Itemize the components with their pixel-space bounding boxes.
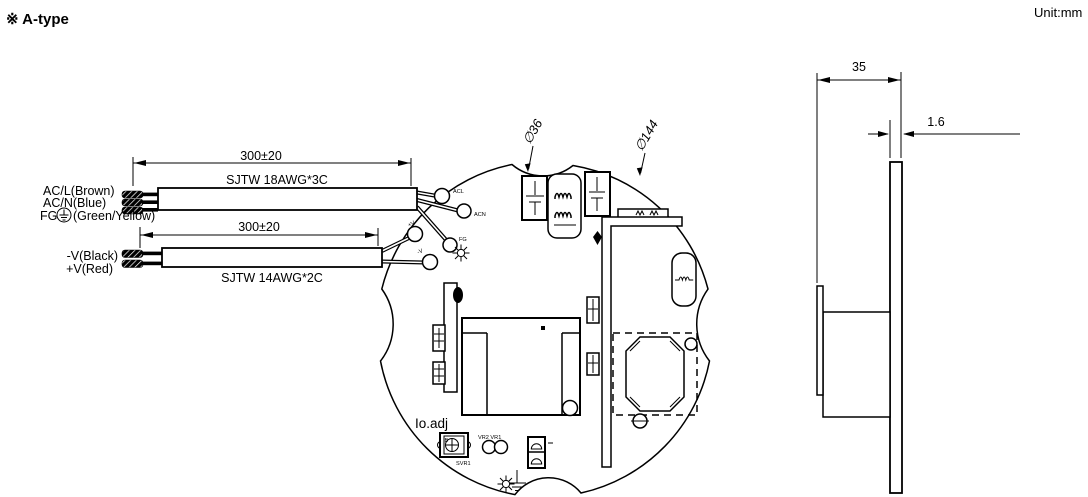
wire-strand-stub bbox=[122, 199, 143, 206]
input-cable-jacket bbox=[158, 188, 417, 210]
wire-label-fg-suffix: (Green/Yellow) bbox=[73, 209, 155, 223]
terminal-label-acn: ACN bbox=[474, 212, 486, 218]
side-component-flange bbox=[817, 286, 823, 395]
output-cable-length: 300±20 bbox=[238, 220, 280, 234]
terminal-neg bbox=[423, 255, 438, 270]
terminal-acl bbox=[435, 189, 450, 204]
chassis-ground-icon bbox=[453, 245, 470, 262]
wire-strand-stub bbox=[122, 191, 143, 198]
thickness-dimension: 1.6 bbox=[927, 115, 944, 129]
output-cable-spec: SJTW 14AWG*2C bbox=[221, 271, 323, 285]
terminal-fg bbox=[443, 238, 457, 252]
wire-lead bbox=[142, 252, 162, 256]
wire-strand-stub bbox=[122, 250, 143, 258]
side-plate bbox=[890, 162, 902, 493]
transformer bbox=[462, 318, 580, 416]
output-cable-jacket bbox=[162, 248, 382, 267]
mechanical-drawing-page: ※ A-type Unit:mm ∅36 ∅144 300±20 SJTW 18… bbox=[0, 0, 1088, 497]
choke-coil-box bbox=[548, 174, 581, 238]
wire-label-neg: -V(Black) bbox=[67, 249, 118, 263]
wire-label-fg-prefix: FG bbox=[40, 209, 57, 223]
wire-strand-stub bbox=[122, 260, 143, 268]
drawing-canvas: ※ A-type Unit:mm ∅36 ∅144 300±20 SJTW 18… bbox=[0, 0, 1088, 497]
type-label: ※ A-type bbox=[6, 11, 69, 28]
input-cable-spec: SJTW 18AWG*3C bbox=[226, 173, 328, 187]
depth-dimension: 35 bbox=[852, 60, 866, 74]
input-cable-length: 300±20 bbox=[240, 149, 282, 163]
io-adj-label: Io.adj bbox=[415, 416, 448, 431]
wire-lead bbox=[142, 200, 158, 204]
wire-lead bbox=[142, 193, 158, 197]
capacitor-1 bbox=[522, 176, 547, 220]
side-component-box bbox=[823, 312, 890, 417]
wire-lead bbox=[142, 262, 162, 266]
wire-label-acn: AC/N(Blue) bbox=[43, 196, 106, 210]
terminal-acn bbox=[457, 204, 471, 218]
capacitor-2 bbox=[585, 172, 610, 216]
potentiometer-svr1: B bbox=[438, 433, 471, 457]
inductor-capsule bbox=[672, 253, 696, 306]
wire-label-pos: +V(Red) bbox=[66, 262, 113, 276]
terminal-label-acl: ACL bbox=[453, 189, 464, 195]
terminal-label-fg: FG bbox=[459, 237, 467, 243]
svr1-label: SVR1 bbox=[456, 461, 471, 467]
pot-letter: B bbox=[445, 438, 449, 444]
unit-label: Unit:mm bbox=[1034, 5, 1082, 20]
